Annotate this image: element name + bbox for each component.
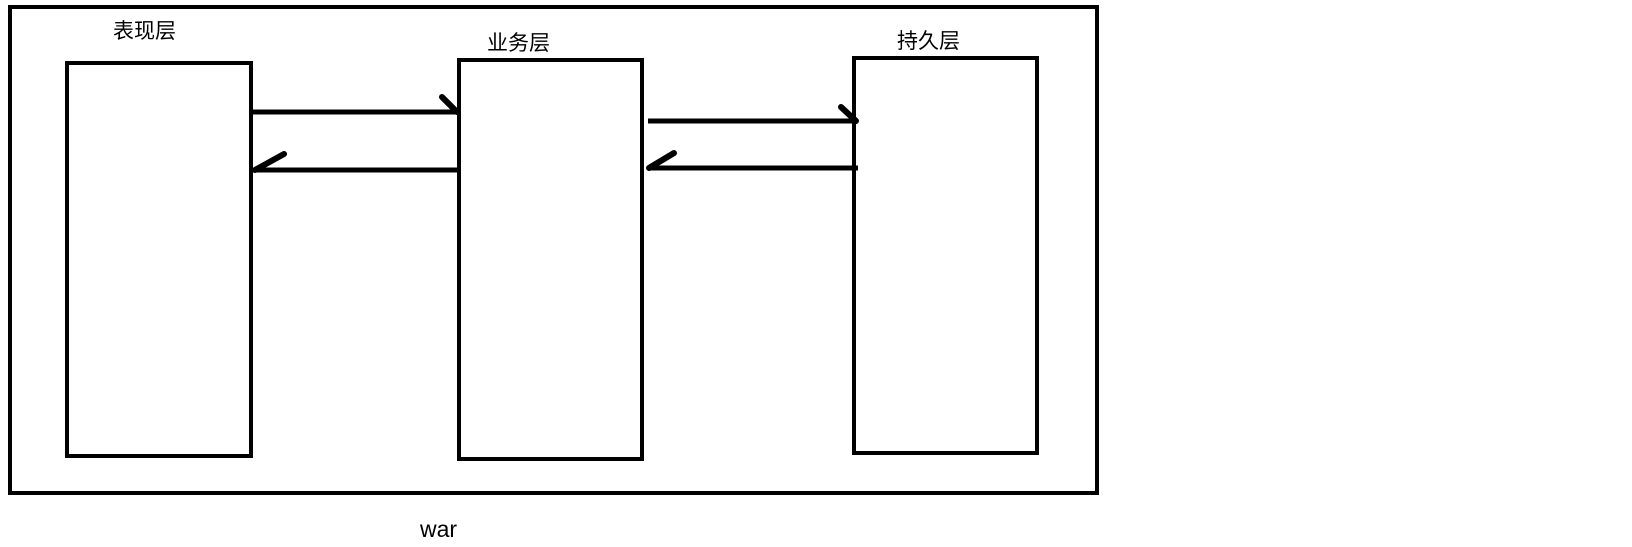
- presentation-layer-box: [65, 61, 253, 458]
- business-layer-label: 业务层: [487, 32, 550, 55]
- persistence-layer-label: 持久层: [897, 30, 960, 53]
- presentation-layer-label: 表现层: [113, 20, 176, 43]
- package-name-label: war: [420, 516, 457, 543]
- persistence-layer-box: [852, 56, 1039, 455]
- business-layer-box: [457, 58, 644, 461]
- diagram-canvas: 表现层 业务层 持久层 war: [0, 0, 1632, 547]
